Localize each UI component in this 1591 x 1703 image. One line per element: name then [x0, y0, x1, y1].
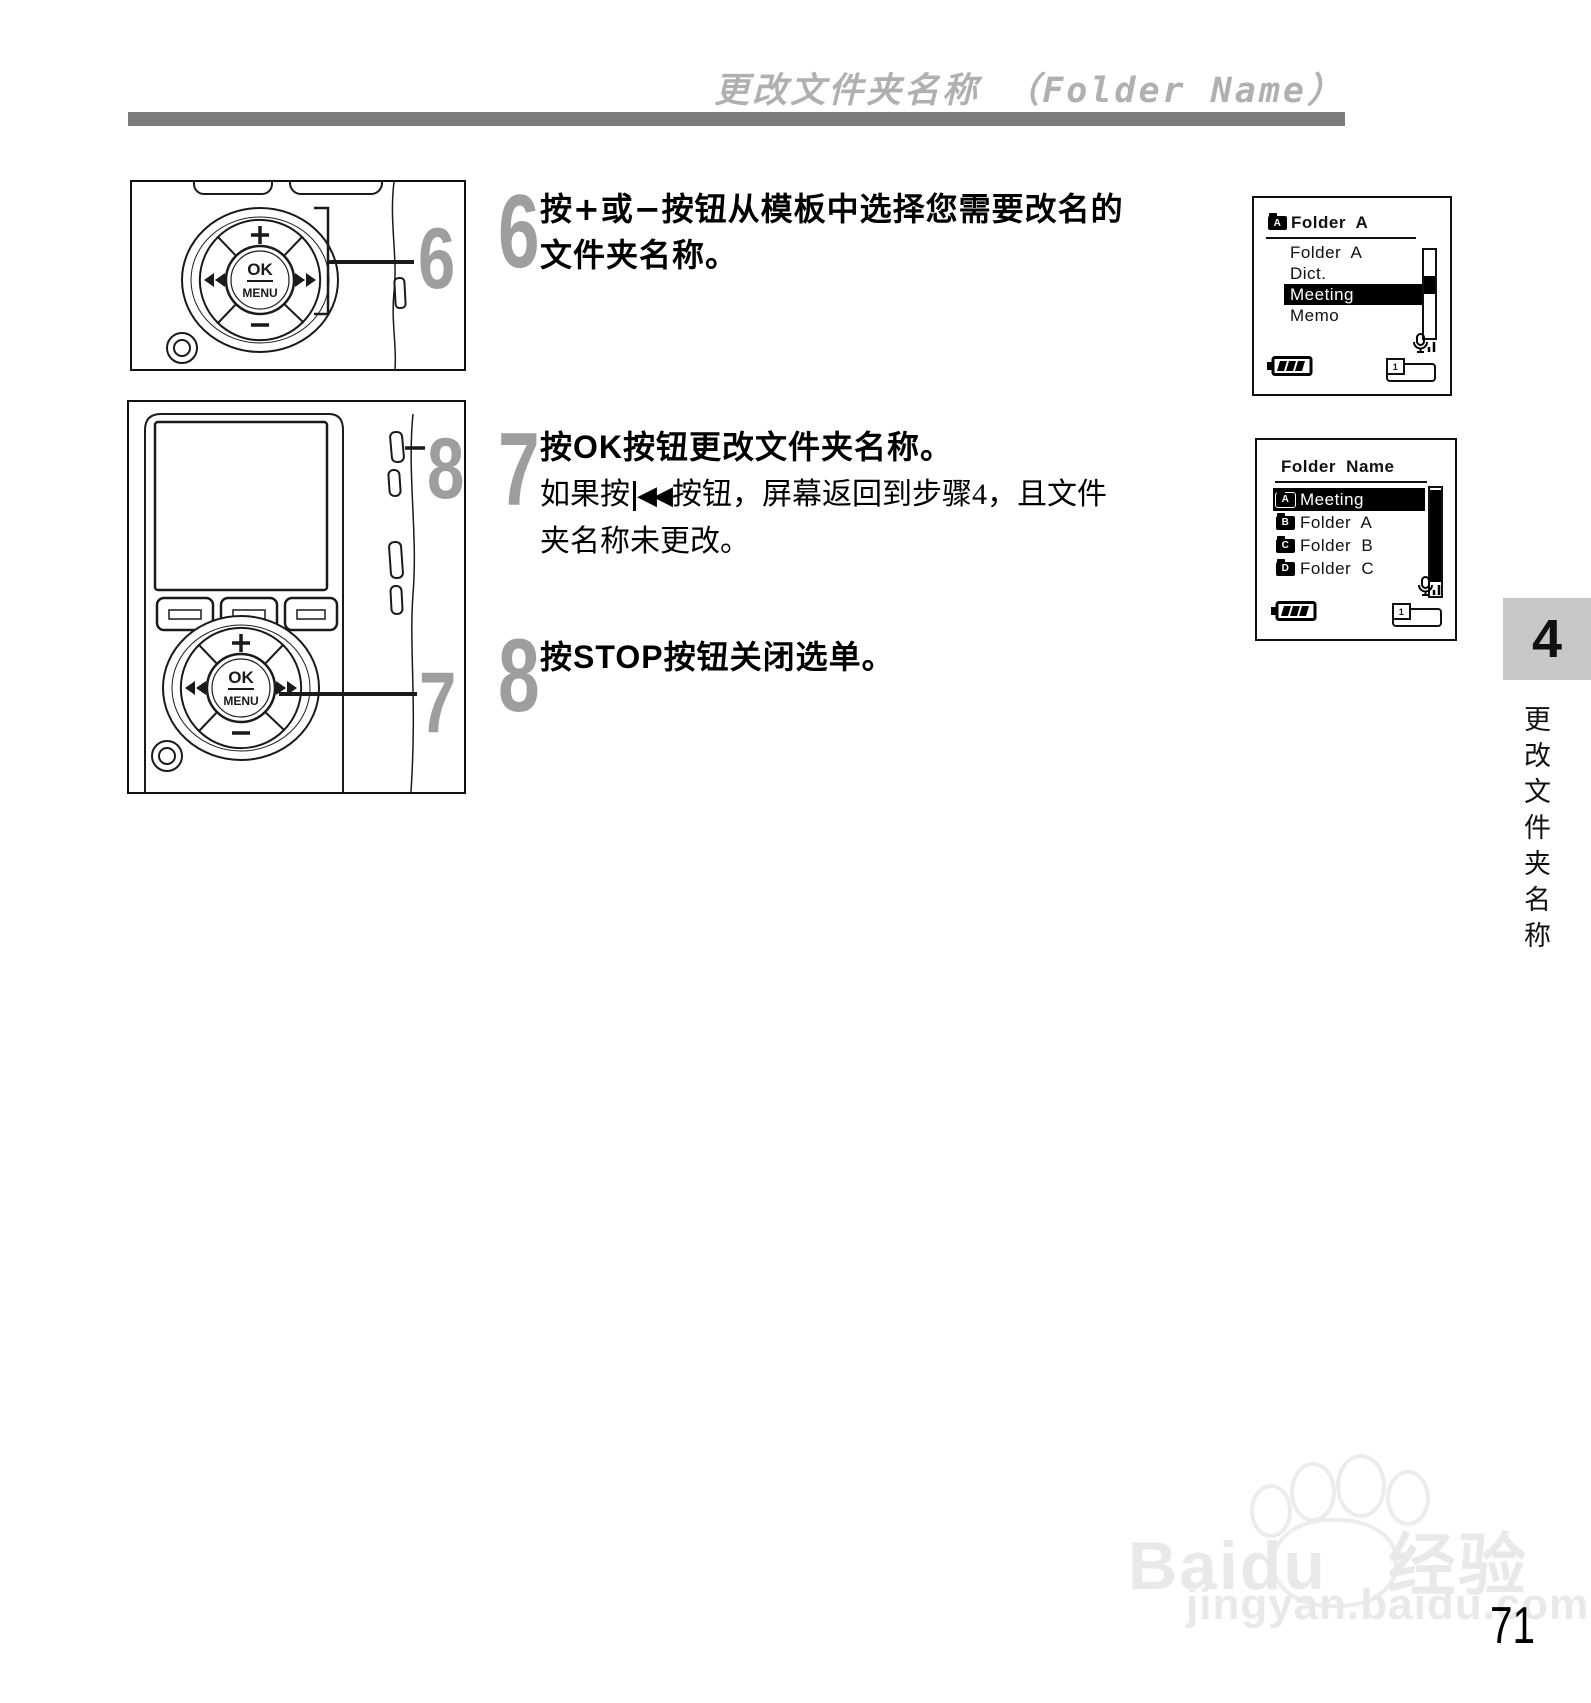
device-line-art-2: OK MENU 8 7	[129, 402, 464, 792]
device-line-art-1: OK MENU 6	[132, 182, 464, 369]
list-item-selected: Meeting	[1284, 284, 1428, 305]
menu-label: MENU	[242, 286, 277, 300]
list-item: Dict.	[1284, 263, 1428, 284]
side-switch	[388, 470, 401, 497]
chapter-number: 4	[1532, 608, 1562, 670]
step-8-number: 8	[498, 630, 540, 724]
lcd2-scroll-thumb	[1430, 490, 1441, 582]
list-item: Memo	[1284, 305, 1428, 326]
list-item: Folder A	[1284, 242, 1428, 263]
lcd1-header: A Folder A	[1268, 213, 1368, 233]
lcd1-header-label: Folder A	[1291, 213, 1368, 233]
card-number: 1	[1392, 603, 1411, 620]
lcd1-scroll-thumb	[1424, 276, 1435, 294]
folder-d-icon: D	[1276, 562, 1295, 576]
mic-level-icon	[1416, 576, 1442, 603]
callout-number-6: 6	[418, 211, 455, 307]
manual-page: 更改文件夹名称 （Folder Name）	[0, 0, 1591, 1703]
device-display	[155, 422, 327, 590]
lcd-screen-1: A Folder A Folder A Dict. Meeting Memo	[1252, 196, 1452, 396]
page-title: 更改文件夹名称 （Folder Name）	[714, 62, 1345, 113]
rewind-key-glyph: ◀◀	[633, 481, 669, 511]
side-switch	[394, 278, 406, 308]
side-switch	[390, 586, 402, 615]
lcd2-header-label: Folder Name	[1281, 457, 1394, 477]
device-top-button	[194, 182, 272, 194]
minus-key-glyph: −	[634, 190, 662, 228]
lcd1-folder-list: Folder A Dict. Meeting Memo	[1290, 242, 1428, 326]
menu-label: MENU	[223, 694, 258, 708]
mic-level-icon	[1411, 333, 1437, 360]
lcd2-header-rule	[1275, 481, 1427, 483]
callout-number-8: 8	[427, 421, 464, 517]
lcd2-header: Folder Name	[1281, 457, 1394, 477]
ok-label: OK	[228, 668, 254, 687]
stop-side-switch	[390, 432, 405, 463]
page-number: 71	[1490, 1596, 1535, 1656]
step-6-number: 6	[498, 186, 540, 280]
title-rule-bar	[128, 112, 1345, 126]
device-illustration-step6: OK MENU 6	[130, 180, 466, 371]
lcd1-header-rule	[1266, 237, 1416, 239]
ok-key-label: OK	[573, 429, 623, 465]
step-6-line2: 文件夹名称。	[540, 237, 738, 273]
battery-icon	[1267, 356, 1313, 381]
side-switch	[389, 542, 403, 579]
card-slot-indicator: 1	[1392, 608, 1442, 627]
soft-key	[285, 598, 337, 630]
list-item-selected: A Meeting	[1273, 488, 1425, 511]
callout-number-7: 7	[419, 655, 456, 751]
record-button	[152, 741, 182, 771]
record-button	[167, 333, 197, 363]
battery-icon	[1271, 601, 1317, 626]
folder-c-icon: C	[1276, 539, 1295, 553]
folder-b-icon: B	[1276, 516, 1295, 530]
card-number: 1	[1386, 358, 1405, 375]
lcd1-scrollbar	[1422, 248, 1437, 340]
nav-pad: OK MENU	[167, 208, 338, 363]
lcd2-folder-list: A Meeting B Folder A C Folder B D Folder…	[1273, 488, 1425, 580]
folder-a-icon: A	[1276, 493, 1295, 507]
chapter-title-vertical: 更改文件夹名称	[1516, 705, 1555, 965]
list-item: B Folder A	[1273, 511, 1425, 534]
plus-key-glyph: +	[573, 190, 601, 228]
step-7-note: 如果按◀◀按钮，屏幕返回到步骤4，且文件 夹名称未更改。	[540, 472, 1107, 564]
device-top-button	[290, 182, 382, 194]
lcd-screen-2: Folder Name A Meeting B Folder A C Folde…	[1255, 438, 1457, 641]
device-side-edge	[411, 414, 414, 792]
step-8-heading: 按STOP按钮关闭选单。	[540, 634, 895, 680]
device-illustration-step7-8: OK MENU 8 7	[127, 400, 466, 794]
list-item: D Folder C	[1273, 557, 1425, 580]
step-6-text: 按+或−按钮从模板中选择您需要改名的 文件夹名称。	[540, 186, 1124, 278]
step-7-heading: 按OK按钮更改文件夹名称。	[540, 424, 953, 470]
step-7-number: 7	[498, 424, 540, 518]
card-slot-indicator: 1	[1386, 363, 1436, 382]
stop-key-label: STOP	[573, 639, 664, 675]
folder-a-icon: A	[1268, 216, 1287, 230]
chapter-tab: 4	[1503, 598, 1591, 680]
step-6-line1: 按	[540, 191, 573, 227]
device-side-edge	[392, 182, 395, 369]
ok-label: OK	[247, 260, 273, 279]
list-item: C Folder B	[1273, 534, 1425, 557]
